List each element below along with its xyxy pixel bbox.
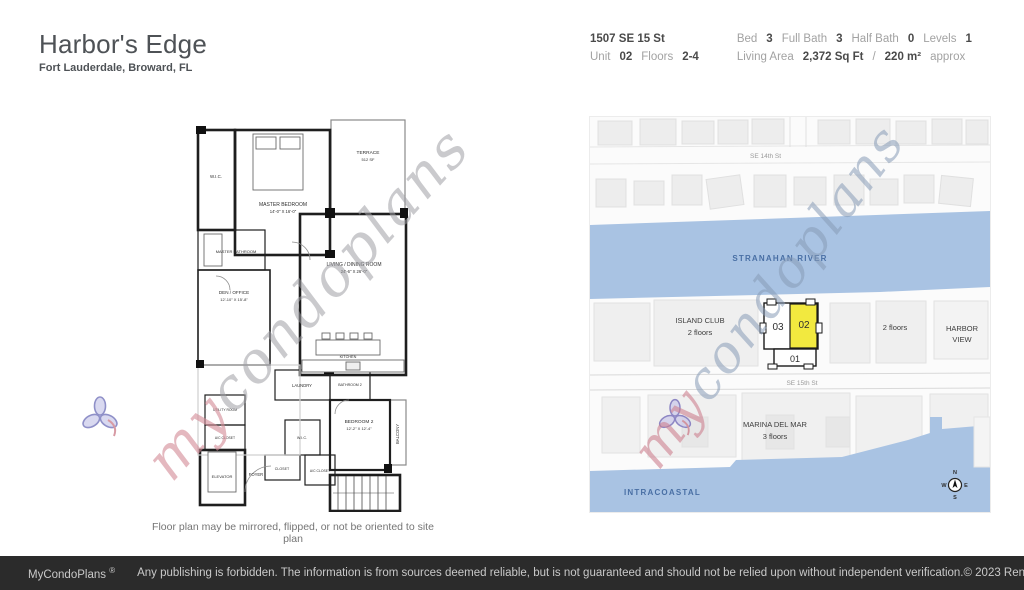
header-info-col-left: 1507 SE 15 St Unit 02 Floors 2-4 (590, 33, 699, 69)
header-info-col-right: Bed 3 Full Bath 3 Half Bath 0 Levels 1 L… (737, 33, 972, 69)
room-label-closet: CLOSET (275, 467, 290, 471)
room-labels: W.I.C. MASTER BEDROOM 14'-0" X 16'-0" TE… (210, 150, 400, 479)
floor-plan: W.I.C. MASTER BEDROOM 14'-0" X 16'-0" TE… (196, 114, 408, 512)
room-label-ac-closet2: A/C CLOSET (310, 469, 330, 473)
page-subtitle: Fort Lauderdale, Broward, FL (39, 62, 207, 74)
room-label-bathroom2: BATHROOM 2 (338, 383, 362, 387)
room-label-bedroom2: BEDROOM 2 (345, 419, 374, 425)
bed-label: Bed (737, 33, 757, 45)
room-dims-living-dining: 24'-6" X 26'-0" (341, 269, 368, 274)
stairs (333, 476, 394, 510)
levels-value: 1 (965, 33, 971, 45)
map-dock-east (974, 417, 990, 467)
compass-e: E (964, 483, 968, 489)
room-label-living-dining: LIVING / DINING ROOM (326, 262, 381, 268)
room-dims-master-bedroom: 14'-0" X 16'-0" (270, 209, 297, 214)
bed-value: 3 (766, 33, 772, 45)
building-label-island-club-floors: 2 floors (688, 328, 713, 337)
room-label-wic2: W.I.C. (297, 436, 307, 440)
site-map: SE 14th St STRANAHAN RIVER ISLAND CLUB 2… (590, 117, 990, 512)
room-label-balcony: BALCONY (395, 424, 400, 444)
footer-bar: MyCondoPlans ® Any publishing is forbidd… (0, 556, 1024, 590)
room-label-ac-closet: A/C CLOSET (215, 436, 235, 440)
room-label-master-bathroom: MASTER BATHROOM (216, 249, 257, 254)
room-label-utility: UTILITY ROOM (213, 408, 237, 412)
building-label-island-club: ISLAND CLUB (675, 316, 724, 325)
unit-value: 02 (619, 51, 632, 63)
living-area-value: 2,372 Sq Ft (803, 51, 864, 63)
building-label-harbor-view-1: HARBOR (946, 324, 979, 333)
unit-label-02: 02 (798, 320, 810, 331)
room-label-wic: W.I.C. (210, 174, 222, 179)
header-left: Harbor's Edge Fort Lauderdale, Broward, … (39, 30, 207, 74)
street-label-se15: SE 15th St (786, 380, 817, 387)
footer-disclaimer: Any publishing is forbidden. The informa… (137, 567, 963, 579)
registered-mark: ® (109, 566, 115, 575)
building-label-marina-floors: 3 floors (763, 432, 788, 441)
water-label-intracoastal: INTRACOASTAL (624, 488, 701, 497)
street-label-se14: SE 14th St (750, 153, 781, 160)
compass-s: S (953, 495, 957, 501)
watermark-flower-icon (78, 392, 122, 438)
floors-label: Floors (641, 51, 673, 63)
room-label-terrace: TERRACE (357, 150, 380, 156)
elevator-cab (208, 452, 236, 492)
room-label-elevator: ELEVATOR (212, 474, 233, 479)
unit-label-01: 01 (790, 354, 800, 364)
floor-plan-caption: Floor plan may be mirrored, flipped, or … (150, 521, 436, 545)
living-area-suffix: approx (930, 51, 965, 63)
building-label-east-floors: 2 floors (883, 323, 908, 332)
compass-w: W (941, 483, 947, 489)
footer-copyright: © 2023 Renaissance Trading Corp All Righ… (963, 567, 1024, 579)
water-label-stranahan: STRANAHAN RIVER (732, 254, 827, 263)
levels-label: Levels (923, 33, 956, 45)
room-label-foyer: FOYER (249, 472, 263, 477)
living-area-separator: / (872, 51, 875, 63)
unit-label-03: 03 (772, 322, 784, 333)
full-bath-value: 3 (836, 33, 842, 45)
room-dims-den-office: 12'-10" X 15'-8" (220, 297, 248, 302)
full-bath-label: Full Bath (782, 33, 827, 45)
room-dims-bedroom2: 12'-2" X 12'-4" (346, 426, 372, 431)
building-label-harbor-view-2: VIEW (952, 335, 972, 344)
room-label-master-bedroom: MASTER BEDROOM (259, 202, 307, 208)
building-label-marina: MARINA DEL MAR (743, 420, 807, 429)
address: 1507 SE 15 St (590, 33, 665, 45)
page-title: Harbor's Edge (39, 30, 207, 59)
room-dims-terrace: 512 SF (362, 157, 375, 162)
living-area-metric: 220 m² (885, 51, 921, 63)
room-label-laundry: LAUNDRY (292, 383, 312, 388)
kitchen-island (316, 340, 380, 355)
floor-plan-drawing: W.I.C. MASTER BEDROOM 14'-0" X 16'-0" TE… (196, 114, 408, 512)
footer-brand: MyCondoPlans ® (28, 566, 115, 581)
room-label-den-office: DEN / OFFICE (219, 290, 249, 295)
floors-value: 2-4 (682, 51, 699, 63)
half-bath-value: 0 (908, 33, 914, 45)
site-map-drawing: SE 14th St STRANAHAN RIVER ISLAND CLUB 2… (590, 117, 990, 512)
half-bath-label: Half Bath (852, 33, 899, 45)
unit-label: Unit (590, 51, 610, 63)
room-label-kitchen: KITCHEN (340, 355, 357, 359)
header-info: 1507 SE 15 St Unit 02 Floors 2-4 Bed 3 F… (590, 33, 972, 69)
living-area-label: Living Area (737, 51, 794, 63)
compass-n: N (953, 470, 957, 476)
